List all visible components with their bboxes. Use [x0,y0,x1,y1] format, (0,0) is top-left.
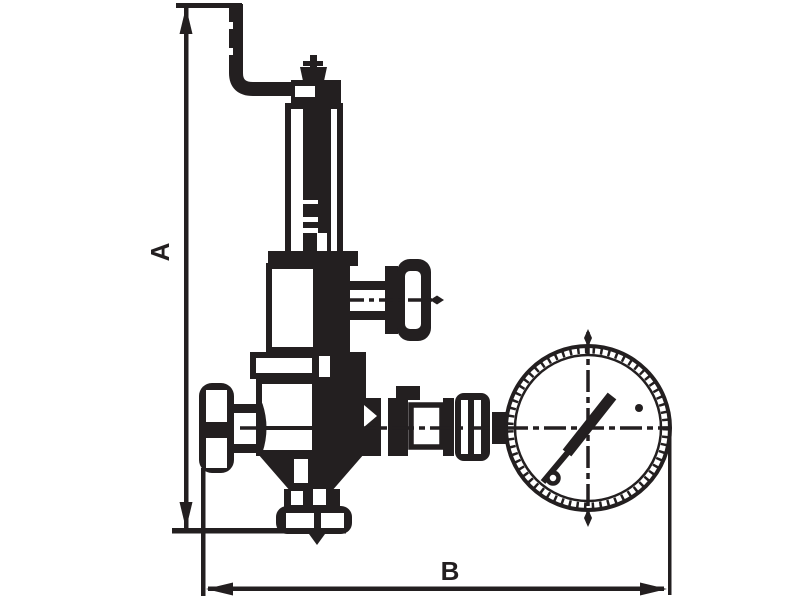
body-seam-line [259,426,363,430]
needle-counterweight [548,473,559,484]
dimension-b-left-extension [201,468,206,596]
dimension-a-label: A [145,242,175,261]
side-knob [347,259,444,341]
cap-nut [291,55,341,104]
valve-body [258,378,366,508]
dimension-b-arrow-right [640,583,667,596]
dimension-a-arrow-down [180,502,193,529]
dimension-b-label: B [441,556,460,586]
bonnet [269,263,350,350]
dimension-a-line [184,8,189,528]
dimension-a-arrow-up [180,7,193,34]
outlet-union [364,386,506,461]
spring-housing [268,106,358,266]
dimension-b-arrow-left [206,583,233,596]
lever-handle [229,4,302,89]
valve-drawing-svg: A B [0,0,800,598]
bottom-flange [276,506,352,545]
dimension-b-line [208,587,664,592]
upper-flange [253,352,366,379]
dimension-b-right-extension [668,430,672,595]
technical-drawing-canvas: A B [0,0,800,598]
gauge-dial-dot [635,404,643,412]
